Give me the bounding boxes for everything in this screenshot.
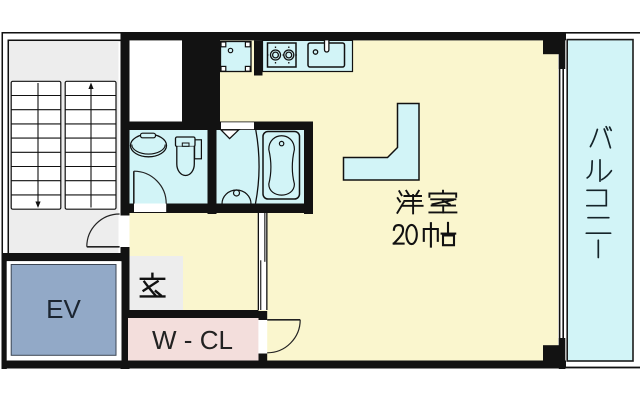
svg-text:W - CL: W - CL <box>152 325 233 355</box>
svg-text:EV: EV <box>46 294 81 324</box>
